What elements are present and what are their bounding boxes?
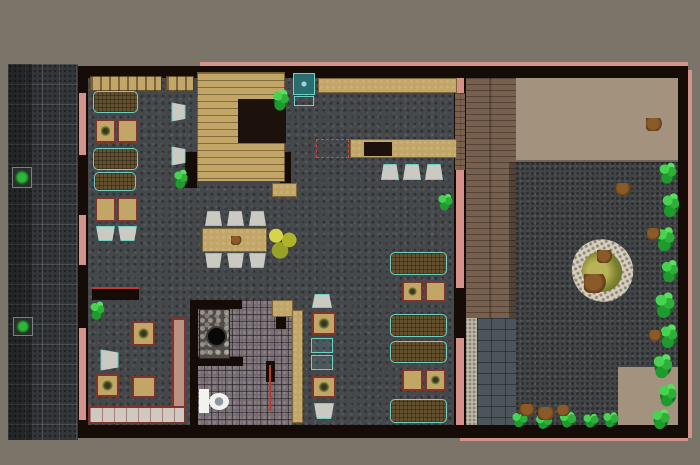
chair: [314, 403, 334, 419]
small-table: [312, 376, 336, 398]
bath-wall-top: [190, 300, 242, 309]
small-table: [312, 312, 336, 335]
potted-plant: [88, 299, 107, 322]
garden-rock: [538, 407, 556, 420]
chair: [312, 294, 332, 308]
divider-salmon-top: [456, 78, 464, 93]
vine-bush: [650, 351, 676, 381]
garden-rock: [646, 118, 663, 131]
booth-table: [402, 369, 423, 391]
toilet-tank: [199, 389, 209, 413]
vine-bush: [656, 381, 680, 409]
chair: [172, 103, 186, 122]
divider-salmon-low: [456, 338, 464, 425]
divider-salmon-mid: [456, 170, 464, 288]
garden-rock: [597, 250, 613, 263]
deck-side-shade: [509, 162, 516, 318]
lounge-chair: [101, 350, 119, 371]
indoor-tree-yellow: [262, 221, 302, 263]
table-centerpiece: [231, 236, 242, 245]
garden-rock: [649, 330, 663, 341]
chair: [227, 253, 244, 268]
divider-opening-wood: [455, 93, 465, 170]
booth-table: [95, 197, 116, 222]
chair: [118, 226, 137, 241]
garden-rock: [584, 274, 607, 293]
potted-plant: [435, 192, 456, 212]
booth-table: [117, 119, 138, 143]
booth-bench: [94, 172, 136, 191]
vine-bush: [652, 289, 678, 321]
ghost-chair: [311, 338, 333, 353]
lounge-ottoman: [132, 376, 156, 398]
garden-rock: [647, 228, 661, 240]
patio-edge-shade: [516, 160, 678, 163]
stair-cabinet: [272, 183, 297, 197]
bath-door-swing: [269, 365, 271, 411]
chair: [96, 226, 115, 241]
border-bush: [599, 411, 623, 428]
deck-planter: [12, 167, 32, 188]
chair: [205, 253, 222, 268]
garden-rock: [557, 405, 571, 416]
ghost-chair: [311, 355, 333, 370]
booth-bench: [390, 341, 447, 363]
back-counter: [318, 78, 457, 93]
bar-stool: [381, 164, 399, 180]
booth-table: [117, 197, 138, 222]
bench-strip: [292, 310, 303, 423]
lounge-ottoman: [96, 374, 119, 397]
accent-right: [688, 70, 692, 438]
wall-shelf-b: [166, 76, 194, 91]
bar-stool: [425, 164, 443, 180]
booth-bench: [390, 314, 447, 337]
chair: [172, 147, 186, 166]
garden-rock: [616, 183, 632, 195]
booth-table: [95, 119, 116, 143]
deck-edge-shade: [8, 64, 32, 440]
vine-bush: [659, 257, 681, 285]
booth-bench: [93, 148, 138, 170]
chair: [227, 211, 244, 226]
sink-unit: [293, 73, 315, 95]
wall-shelf-a: [90, 76, 162, 91]
lounge-bench-horizontal: [88, 406, 186, 424]
booth-table: [425, 369, 446, 391]
floor-plan-canvas: [0, 0, 700, 465]
strip-cabinet: [272, 300, 293, 317]
wash-basin: [206, 326, 227, 347]
lounge-ottoman: [132, 321, 155, 346]
vine-bush: [648, 407, 674, 431]
bar-stool: [403, 164, 421, 180]
chair: [205, 211, 222, 226]
divider-door: [454, 288, 466, 338]
accent-bottom: [460, 438, 688, 441]
booth-table: [425, 281, 446, 302]
window-left-2: [79, 215, 86, 265]
bar-sink: [364, 142, 392, 156]
booth-bench: [390, 252, 447, 275]
vine-bush: [656, 160, 680, 186]
booth-table: [402, 281, 423, 302]
vine-bush: [660, 190, 682, 220]
potted-plant: [172, 167, 190, 191]
service-zone-marking: [316, 139, 349, 158]
window-left-3: [79, 328, 86, 420]
garden-rock: [520, 404, 536, 416]
lounge-stub-redline: [92, 287, 139, 289]
sink-ghost: [294, 96, 314, 106]
deck-planter: [13, 317, 33, 336]
patio-beige: [516, 72, 678, 162]
booth-bench: [390, 399, 447, 423]
potted-plant: [270, 87, 292, 113]
booth-bench: [93, 91, 138, 113]
window-left-1: [79, 93, 86, 155]
toilet-bowl: [209, 393, 229, 410]
